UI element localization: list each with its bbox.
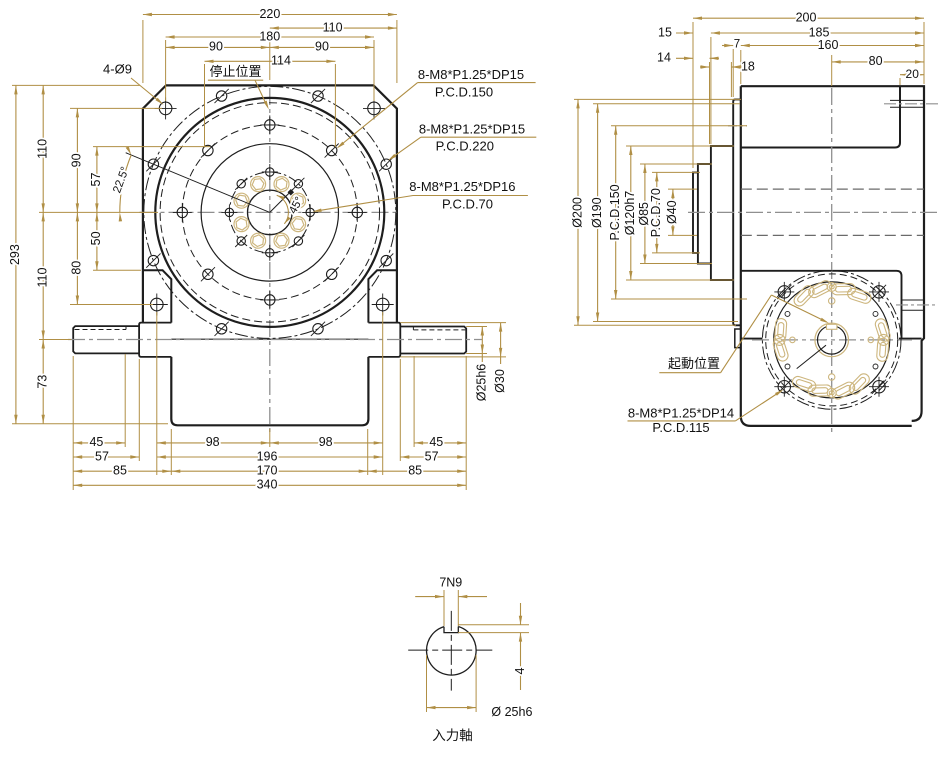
svg-text:P.C.D.150: P.C.D.150: [435, 84, 493, 99]
svg-text:8-M8*P1.25*DP15: 8-M8*P1.25*DP15: [419, 121, 525, 136]
svg-text:8-M8*P1.25*DP14: 8-M8*P1.25*DP14: [628, 405, 734, 420]
svg-text:73: 73: [35, 375, 49, 389]
svg-text:7: 7: [734, 39, 740, 51]
svg-text:57: 57: [95, 449, 109, 463]
svg-text:110: 110: [35, 139, 49, 159]
svg-text:340: 340: [257, 478, 278, 492]
svg-text:Ø40: Ø40: [665, 200, 679, 224]
svg-text:Ø200: Ø200: [570, 197, 584, 228]
svg-text:98: 98: [206, 435, 220, 449]
svg-text:起動位置: 起動位置: [668, 356, 720, 371]
svg-text:45: 45: [429, 435, 443, 449]
svg-text:50: 50: [89, 231, 103, 245]
svg-text:Ø 25h6: Ø 25h6: [491, 705, 532, 719]
svg-text:160: 160: [818, 38, 839, 52]
svg-text:4: 4: [513, 667, 527, 674]
svg-text:90: 90: [209, 40, 223, 54]
svg-text:15: 15: [658, 25, 672, 39]
svg-text:P.C.D.70: P.C.D.70: [442, 197, 493, 212]
svg-text:入力軸: 入力軸: [432, 728, 473, 743]
svg-text:85: 85: [408, 463, 422, 477]
svg-text:90: 90: [315, 40, 329, 54]
svg-text:110: 110: [35, 267, 49, 287]
svg-text:293: 293: [8, 244, 22, 265]
svg-text:85: 85: [113, 463, 127, 477]
svg-text:Ø120h7: Ø120h7: [623, 191, 637, 236]
svg-text:110: 110: [323, 20, 343, 34]
svg-text:200: 200: [796, 10, 817, 24]
svg-text:8-M8*P1.25*DP15: 8-M8*P1.25*DP15: [418, 67, 524, 82]
svg-text:80: 80: [70, 261, 84, 275]
svg-text:7N9: 7N9: [439, 575, 462, 589]
svg-text:8-M8*P1.25*DP16: 8-M8*P1.25*DP16: [409, 179, 515, 194]
svg-text:90: 90: [70, 153, 84, 167]
svg-text:P.C.D.150: P.C.D.150: [608, 184, 622, 240]
svg-text:57: 57: [89, 173, 103, 187]
svg-text:80: 80: [869, 54, 883, 68]
svg-text:14: 14: [657, 51, 671, 65]
svg-text:57: 57: [425, 449, 439, 463]
svg-text:170: 170: [257, 463, 278, 477]
svg-text:P.C.D.220: P.C.D.220: [436, 138, 494, 153]
svg-text:18: 18: [741, 59, 755, 73]
svg-text:98: 98: [319, 435, 333, 449]
svg-text:180: 180: [259, 29, 280, 43]
svg-text:4-Ø9: 4-Ø9: [103, 61, 132, 76]
svg-text:Ø25h6: Ø25h6: [475, 364, 489, 402]
svg-text:P.C.D.70: P.C.D.70: [649, 188, 663, 237]
svg-text:P.C.D.115: P.C.D.115: [652, 420, 709, 435]
svg-text:114: 114: [271, 54, 291, 68]
svg-text:45: 45: [89, 435, 103, 449]
svg-text:Ø190: Ø190: [590, 197, 604, 228]
svg-text:停止位置: 停止位置: [209, 64, 261, 79]
svg-text:20: 20: [906, 67, 920, 81]
svg-text:Ø30: Ø30: [493, 369, 507, 393]
svg-text:220: 220: [259, 7, 280, 21]
svg-text:196: 196: [257, 449, 278, 463]
